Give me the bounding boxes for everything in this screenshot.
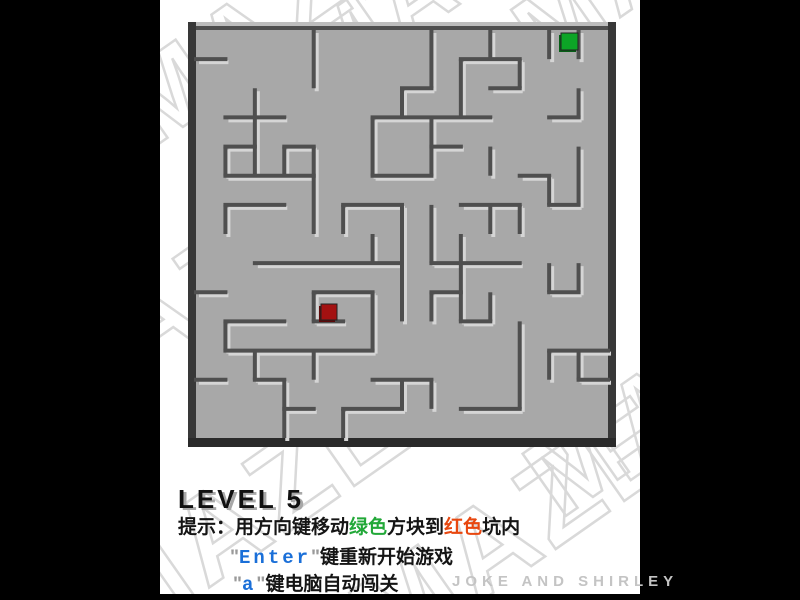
auto-part-0: " <box>233 574 242 595</box>
right-black-bar <box>640 0 800 600</box>
bottom-black-strip <box>0 594 800 600</box>
auto-key-instruction-line: "a"键电脑自动闯关 <box>233 569 398 596</box>
level-title: LEVEL 5 <box>178 484 304 515</box>
player-green-block <box>561 33 578 50</box>
enter-key-instruction-line: "Enter"键重新开始游戏 <box>230 542 453 569</box>
enter-part-1: Enter <box>239 547 311 569</box>
game-screen: MAZEMAZEMAZEMAZEMAZEMAZEMAZE LEVEL 5 提示：… <box>0 0 800 600</box>
auto-part-1: a <box>242 574 256 596</box>
auto-part-3: 键电脑自动闯关 <box>265 574 398 595</box>
enter-part-0: " <box>230 547 239 568</box>
maze-border-bottom <box>188 438 616 447</box>
credit-text: JOKE AND SHIRLEY <box>452 573 678 590</box>
hint-instruction-line: 提示：用方向键移动绿色方块到红色坑内 <box>178 512 520 539</box>
hint-part-2: 方块到 <box>387 517 444 538</box>
enter-part-2: " <box>311 547 320 568</box>
hint-part-1: 绿色 <box>349 517 387 538</box>
target-red-pit <box>321 304 337 320</box>
hint-part-4: 坑内 <box>482 517 520 538</box>
maze-border-top-light <box>188 22 616 26</box>
maze-border-left <box>188 22 196 447</box>
enter-part-3: 键重新开始游戏 <box>320 547 453 568</box>
hint-part-0: 提示：用方向键移动 <box>178 517 349 538</box>
left-black-bar <box>0 0 160 600</box>
maze-border-top <box>196 26 608 30</box>
hint-part-3: 红色 <box>444 517 482 538</box>
